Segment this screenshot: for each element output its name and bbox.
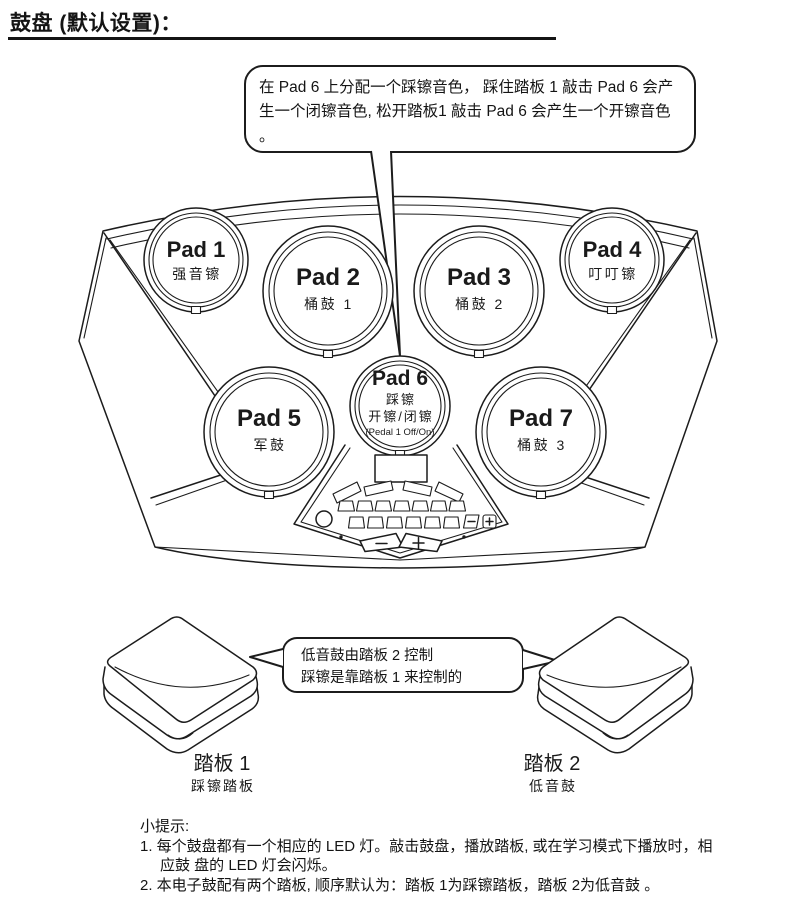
pad-1-label: 强音镲 — [172, 266, 222, 282]
pad-3-led — [475, 351, 484, 358]
pad-1-led — [192, 307, 201, 314]
pedal-1-label: 踩镲踏板 — [191, 778, 255, 794]
panel-button — [425, 517, 441, 528]
pad-1: Pad 1 强音镲 — [144, 208, 248, 314]
display-screen — [375, 455, 427, 482]
callout-pedals-line2: 踩镲是靠踏板 1 来控制的 — [301, 667, 515, 689]
callout-pad6-text: 在 Pad 6 上分配一个踩镲音色， 踩住踏板 1 敲击 Pad 6 会产生一个… — [259, 76, 687, 149]
pedal-1-drawing — [103, 617, 258, 753]
screw-dot — [339, 535, 342, 538]
pad-4-label: 叮叮镲 — [588, 266, 638, 282]
pedal-2-name: 踏板 2 — [524, 752, 581, 775]
pad-1-name: Pad 1 — [167, 237, 226, 262]
panel-button — [406, 517, 422, 528]
screw-dot — [462, 535, 465, 538]
pad-6-label3: (Pedal 1 Off/On) — [366, 427, 435, 438]
panel-button — [444, 517, 460, 528]
pad-5-label: 军鼓 — [254, 437, 287, 453]
notes-heading: 小提示: — [140, 817, 718, 837]
pad-2-led — [324, 351, 333, 358]
pad-5-led — [265, 492, 274, 499]
panel-button — [449, 501, 466, 511]
panel-button — [368, 517, 384, 528]
notes-section: 小提示: 1. 每个鼓盘都有一个相应的 LED 灯。敲击鼓盘，播放踏板, 或在学… — [140, 817, 718, 895]
panel-button — [431, 501, 448, 511]
panel-button — [375, 501, 392, 511]
callout-pedals-text: 低音鼓由踏板 2 控制 踩镲是靠踏板 1 来控制的 — [301, 645, 515, 690]
pedal-2-label: 低音鼓 — [529, 778, 577, 794]
pad-4: Pad 4 叮叮镲 — [560, 208, 664, 314]
panel-button — [412, 501, 429, 511]
pad-4-name: Pad 4 — [583, 237, 642, 262]
pad-5-name: Pad 5 — [237, 405, 301, 432]
panel-button — [338, 501, 355, 511]
pad-2-label: 桶鼓 1 — [304, 296, 354, 312]
callout-pedals-tail-left — [250, 649, 283, 667]
knob-icon — [316, 511, 332, 527]
pad-7: Pad 7 桶鼓 3 — [476, 367, 606, 499]
pad-2-name: Pad 2 — [296, 264, 360, 291]
pad-7-led — [537, 492, 546, 499]
pad-6-label2: 开镲/闭镲 — [368, 409, 434, 424]
pad-5: Pad 5 军鼓 — [204, 367, 334, 499]
panel-button — [394, 501, 411, 511]
pad-6-name: Pad 6 — [372, 367, 428, 390]
pad-7-name: Pad 7 — [509, 405, 573, 432]
callout-pedals-line1: 低音鼓由踏板 2 控制 — [301, 645, 515, 667]
note-item-1: 1. 每个鼓盘都有一个相应的 LED 灯。敲击鼓盘，播放踏板, 或在学习模式下播… — [140, 837, 718, 876]
pad-6: Pad 6 踩镲 开镲/闭镲 (Pedal 1 Off/On) — [350, 356, 450, 458]
panel-button — [357, 501, 374, 511]
pad-6-label: 踩镲 — [386, 392, 416, 407]
pad-3-name: Pad 3 — [447, 264, 511, 291]
pad-3: Pad 3 桶鼓 2 — [414, 226, 544, 358]
pedal-2-drawing — [538, 617, 693, 753]
pad-2: Pad 2 桶鼓 1 — [263, 226, 393, 358]
panel-button — [387, 517, 403, 528]
pad-7-label: 桶鼓 3 — [517, 437, 567, 453]
note-item-2: 2. 本电子鼓配有两个踏板, 顺序默认为：踏板 1为踩镲踏板，踏板 2为低音鼓 … — [140, 876, 718, 896]
pad-4-led — [608, 307, 617, 314]
pedal-1-name: 踏板 1 — [194, 752, 251, 775]
pad-3-label: 桶鼓 2 — [455, 296, 505, 312]
panel-button — [349, 517, 365, 528]
